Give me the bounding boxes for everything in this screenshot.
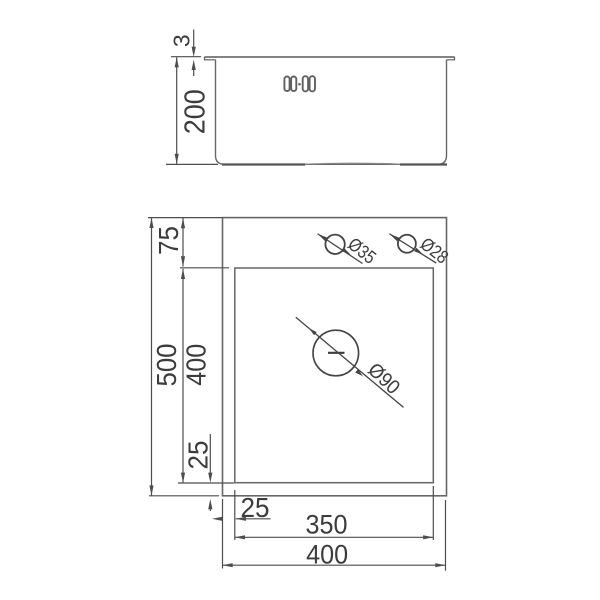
svg-text:200: 200	[180, 89, 212, 134]
svg-text:400: 400	[181, 344, 212, 386]
svg-text:25: 25	[183, 441, 214, 470]
svg-text:25: 25	[241, 492, 270, 523]
svg-text:3: 3	[169, 34, 195, 47]
svg-text:Ø90: Ø90	[363, 359, 404, 399]
svg-text:400: 400	[306, 540, 348, 570]
svg-text:500: 500	[151, 344, 182, 387]
svg-text:75: 75	[153, 226, 184, 255]
svg-text:350: 350	[306, 510, 348, 540]
svg-text:Ø35: Ø35	[344, 233, 380, 268]
